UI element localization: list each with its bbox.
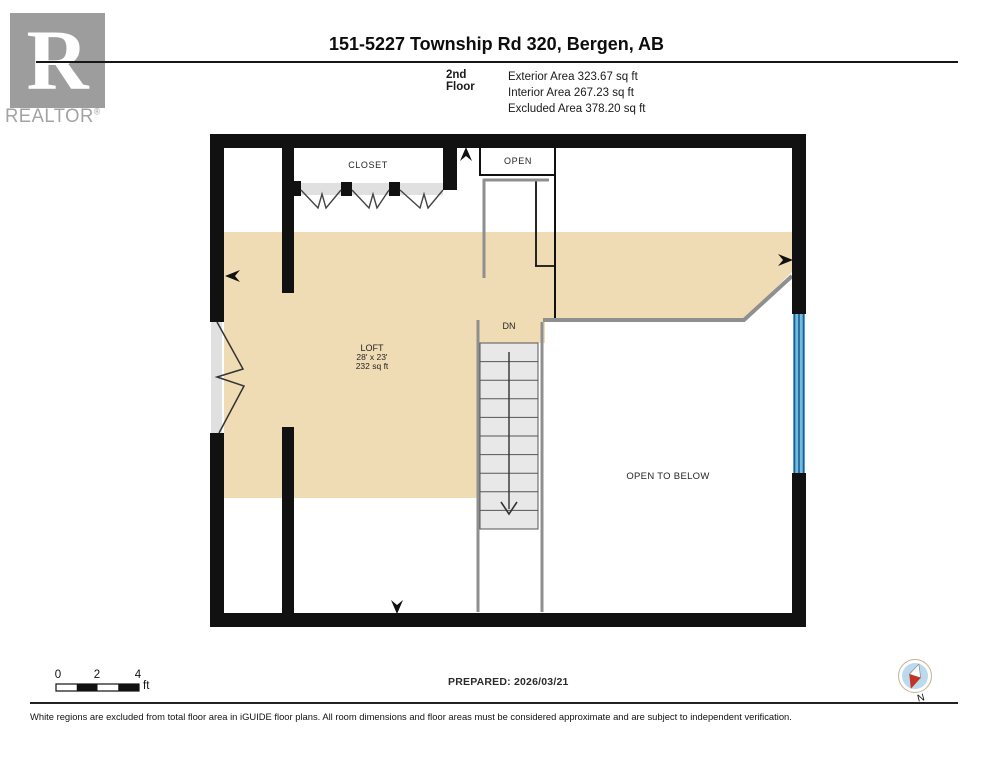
scale-unit-label: ft xyxy=(143,680,149,692)
loft-room-area: 232 sq ft xyxy=(322,362,422,371)
open-area-label: OPEN xyxy=(480,156,556,166)
bottom-wall xyxy=(210,613,806,627)
disclaimer-text: White regions are excluded from total fl… xyxy=(30,711,970,722)
up-arrow-marker xyxy=(460,147,472,161)
closet-doors xyxy=(288,181,443,208)
closet-right-wall xyxy=(443,148,457,190)
closet-door-track xyxy=(294,183,443,195)
left-wall-lower xyxy=(210,433,224,627)
footer-divider-line xyxy=(30,702,958,704)
open-to-below-label: OPEN TO BELOW xyxy=(608,471,728,482)
right-wall-lower xyxy=(792,473,806,627)
staircase xyxy=(480,343,538,529)
floor-plan-drawing xyxy=(0,0,993,768)
top-wall xyxy=(210,134,806,148)
left-wall-upper xyxy=(210,134,224,322)
scale-bar xyxy=(56,684,139,691)
loft-partition-wall xyxy=(282,427,294,613)
prepared-date-label: PREPARED: 2026/03/21 xyxy=(448,676,569,688)
right-wall-upper xyxy=(792,134,806,314)
scale-tick-2: 2 xyxy=(90,669,104,681)
compass-icon xyxy=(899,660,932,693)
closet-left-wall xyxy=(282,148,294,293)
stairs-down-label: DN xyxy=(489,321,529,331)
window xyxy=(793,314,805,473)
closet-room-label: CLOSET xyxy=(318,160,418,170)
loft-room-label: LOFT 28' x 23' 232 sq ft xyxy=(322,344,422,370)
down-arrow-marker xyxy=(391,600,403,614)
scale-tick-0: 0 xyxy=(51,669,65,681)
floor-plan-page: R REALTOR® 151-5227 Township Rd 320, Ber… xyxy=(0,0,993,768)
